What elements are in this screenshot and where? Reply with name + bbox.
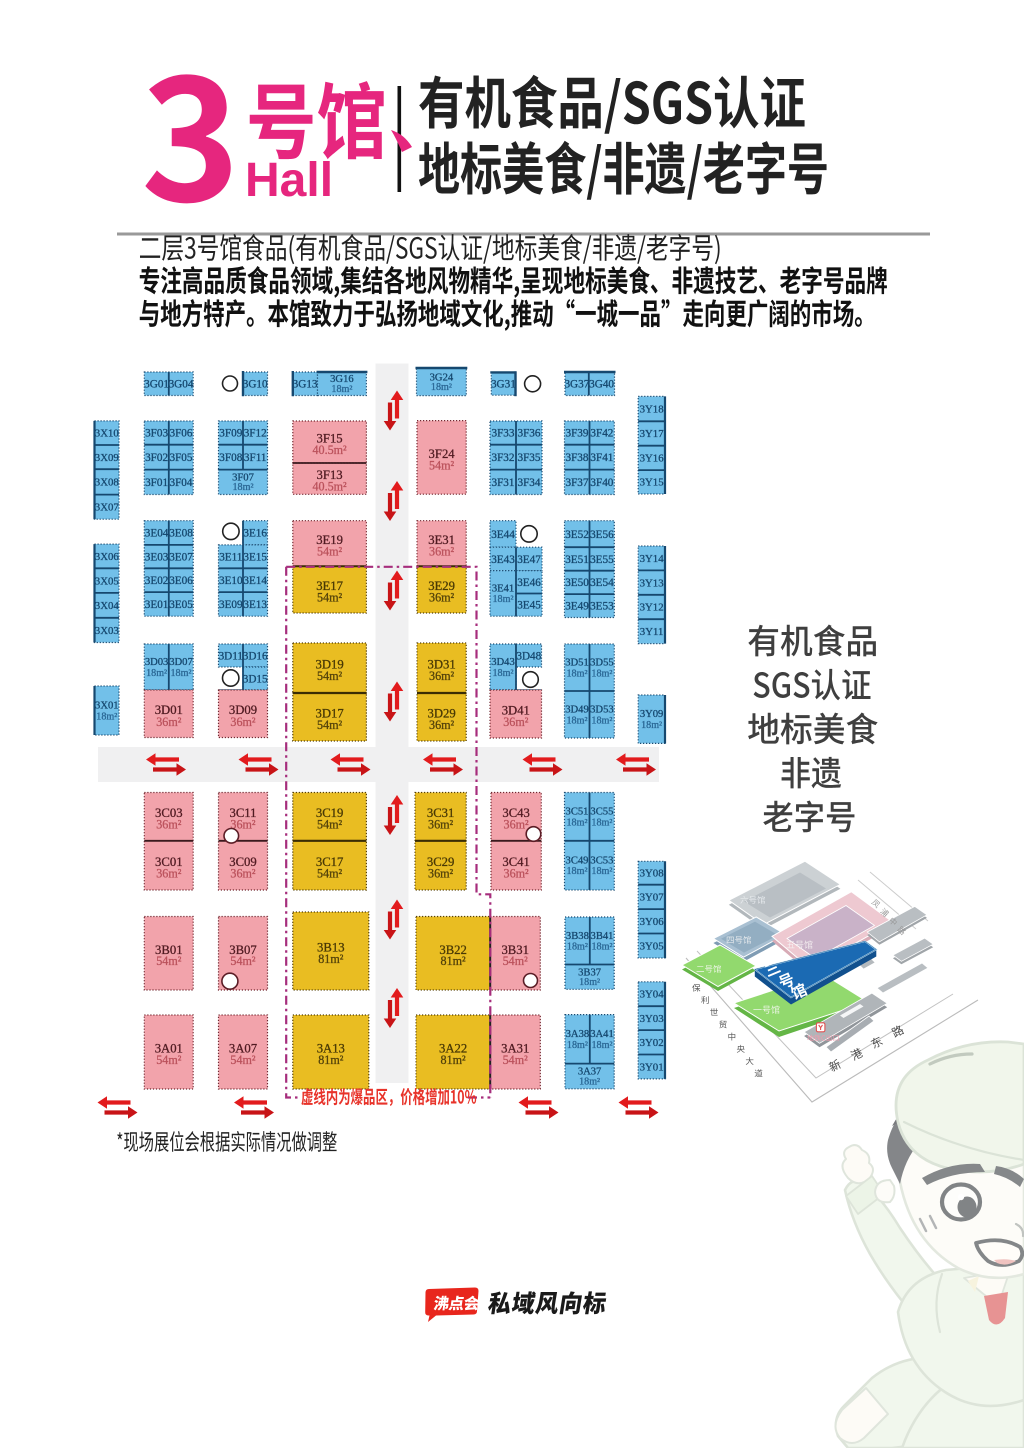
svg-text:18m²: 18m² (579, 1076, 600, 1087)
svg-text:36m²: 36m² (428, 818, 454, 832)
svg-text:3X06: 3X06 (95, 551, 120, 563)
svg-text:36m²: 36m² (429, 669, 455, 683)
svg-text:3Y04: 3Y04 (640, 989, 665, 1001)
svg-text:36m²: 36m² (428, 866, 454, 880)
svg-text:54m²: 54m² (503, 1053, 529, 1067)
svg-text:3Y05: 3Y05 (640, 940, 664, 952)
svg-text:3D55: 3D55 (590, 658, 614, 669)
svg-text:3Y07: 3Y07 (640, 892, 665, 904)
svg-text:3F37: 3F37 (565, 477, 588, 489)
svg-text:18m²: 18m² (567, 1040, 588, 1051)
svg-text:54m²: 54m² (429, 458, 455, 472)
svg-text:3E01: 3E01 (145, 599, 169, 611)
svg-text:3F02: 3F02 (145, 452, 168, 464)
svg-text:3F36: 3F36 (517, 428, 540, 440)
svg-text:18m²: 18m² (567, 942, 588, 953)
svg-text:3G40: 3G40 (589, 379, 614, 391)
svg-text:36m²: 36m² (156, 715, 182, 729)
svg-text:36m²: 36m² (429, 718, 455, 732)
svg-text:3A38: 3A38 (566, 1029, 590, 1040)
svg-text:3X09: 3X09 (95, 452, 119, 464)
svg-text:3F01: 3F01 (145, 477, 168, 489)
svg-text:3F34: 3F34 (517, 477, 540, 489)
svg-text:3E43: 3E43 (491, 554, 515, 566)
svg-text:54m²: 54m² (230, 1053, 256, 1067)
svg-text:3Y12: 3Y12 (640, 602, 664, 614)
svg-text:3E46: 3E46 (517, 577, 541, 589)
svg-text:3C49: 3C49 (566, 855, 589, 866)
svg-text:81m²: 81m² (441, 954, 467, 968)
svg-text:18m²: 18m² (146, 668, 167, 679)
svg-text:3E06: 3E06 (169, 575, 193, 587)
svg-text:3E05: 3E05 (169, 599, 193, 611)
svg-text:54m²: 54m² (317, 591, 343, 605)
svg-text:3F38: 3F38 (565, 452, 588, 464)
svg-text:18m²: 18m² (591, 715, 612, 726)
svg-text:3D07: 3D07 (169, 657, 193, 668)
svg-text:3C53: 3C53 (590, 855, 613, 866)
svg-text:3Y13: 3Y13 (640, 577, 664, 589)
svg-text:3D03: 3D03 (145, 657, 169, 668)
svg-text:3E45: 3E45 (517, 600, 541, 612)
svg-text:36m²: 36m² (429, 591, 455, 605)
svg-text:3D51: 3D51 (565, 658, 589, 669)
svg-text:3E03: 3E03 (145, 551, 169, 563)
svg-text:3F08: 3F08 (219, 452, 242, 464)
svg-text:54m²: 54m² (230, 954, 256, 968)
svg-text:18m²: 18m² (592, 942, 613, 953)
svg-text:36m²: 36m² (504, 866, 530, 880)
svg-text:3Y11: 3Y11 (640, 626, 664, 638)
svg-text:18m²: 18m² (493, 594, 514, 605)
svg-text:3X03: 3X03 (95, 625, 119, 637)
svg-text:3E02: 3E02 (145, 575, 169, 587)
svg-text:18m²: 18m² (331, 384, 352, 395)
svg-text:40.5m²: 40.5m² (312, 443, 347, 457)
svg-text:3D11: 3D11 (219, 650, 243, 662)
svg-text:3X01: 3X01 (95, 701, 119, 712)
svg-text:18m²: 18m² (592, 1040, 613, 1051)
svg-text:3F03: 3F03 (145, 428, 168, 440)
svg-text:3E56: 3E56 (590, 529, 614, 541)
svg-text:3Y15: 3Y15 (640, 477, 664, 489)
svg-text:3X04: 3X04 (95, 600, 120, 612)
svg-text:36m²: 36m² (156, 866, 182, 880)
svg-text:3E04: 3E04 (145, 528, 169, 540)
svg-text:3Y18: 3Y18 (640, 404, 664, 416)
svg-text:3E10: 3E10 (219, 575, 243, 587)
svg-text:3C55: 3C55 (590, 807, 613, 818)
svg-text:3E49: 3E49 (565, 601, 589, 613)
svg-text:3Y08: 3Y08 (640, 868, 664, 880)
svg-text:81m²: 81m² (318, 952, 344, 966)
svg-text:18m²: 18m² (431, 382, 452, 393)
svg-text:3E13: 3E13 (243, 599, 267, 611)
svg-text:81m²: 81m² (441, 1053, 467, 1067)
svg-text:3G04: 3G04 (169, 379, 194, 391)
svg-text:Hall: Hall (245, 154, 333, 207)
svg-text:3G01: 3G01 (144, 379, 169, 391)
svg-text:36m²: 36m² (429, 545, 455, 559)
svg-text:3E09: 3E09 (219, 599, 243, 611)
svg-text:3G37: 3G37 (564, 379, 589, 391)
svg-text:3D15: 3D15 (243, 673, 268, 685)
svg-text:54m²: 54m² (317, 866, 343, 880)
svg-text:3E47: 3E47 (517, 554, 541, 566)
svg-text:3E52: 3E52 (565, 529, 589, 541)
svg-text:3F31: 3F31 (491, 477, 514, 489)
svg-text:3F33: 3F33 (491, 428, 514, 440)
svg-text:3X05: 3X05 (95, 575, 119, 587)
svg-text:54m²: 54m² (156, 1053, 182, 1067)
svg-text:18m²: 18m² (567, 668, 588, 679)
svg-text:3E11: 3E11 (219, 551, 242, 563)
svg-text:3D53: 3D53 (590, 705, 614, 716)
svg-text:36m²: 36m² (504, 818, 530, 832)
svg-text:3D49: 3D49 (565, 705, 589, 716)
svg-text:3G13: 3G13 (293, 379, 318, 391)
svg-text:36m²: 36m² (503, 715, 529, 729)
svg-text:3Y06: 3Y06 (640, 916, 665, 928)
svg-text:3G10: 3G10 (243, 379, 268, 391)
svg-text:3E54: 3E54 (590, 577, 614, 589)
svg-text:3A41: 3A41 (590, 1029, 614, 1040)
svg-text:54m²: 54m² (156, 954, 182, 968)
svg-text:3F06: 3F06 (169, 428, 192, 440)
svg-text:18m²: 18m² (567, 866, 588, 877)
svg-text:3Y14: 3Y14 (640, 553, 665, 565)
svg-text:81m²: 81m² (318, 1053, 344, 1067)
svg-text:3F42: 3F42 (590, 428, 613, 440)
svg-text:3X08: 3X08 (95, 477, 119, 489)
svg-text:54m²: 54m² (317, 818, 343, 832)
svg-text:3B41: 3B41 (591, 931, 614, 942)
svg-text:3G31: 3G31 (491, 379, 516, 391)
svg-text:3F35: 3F35 (517, 452, 540, 464)
svg-text:3D16: 3D16 (243, 650, 268, 662)
svg-text:36m²: 36m² (230, 715, 256, 729)
svg-text:3E16: 3E16 (243, 528, 267, 540)
svg-text:3E50: 3E50 (565, 577, 589, 589)
svg-text:3F11: 3F11 (244, 452, 267, 464)
svg-text:18m²: 18m² (641, 720, 662, 731)
svg-text:18m²: 18m² (567, 817, 588, 828)
svg-text:3Y09: 3Y09 (640, 709, 664, 720)
svg-text:18m²: 18m² (591, 817, 612, 828)
svg-text:3Y03: 3Y03 (640, 1013, 664, 1025)
svg-text:3E41: 3E41 (492, 584, 514, 595)
svg-text:3E53: 3E53 (590, 601, 614, 613)
svg-text:3D43: 3D43 (491, 657, 515, 668)
svg-text:3F04: 3F04 (169, 477, 192, 489)
svg-text:3F12: 3F12 (244, 428, 267, 440)
svg-text:54m²: 54m² (317, 669, 343, 683)
svg-text:3E51: 3E51 (565, 554, 589, 566)
svg-text:3E07: 3E07 (169, 551, 193, 563)
svg-text:3B38: 3B38 (566, 931, 589, 942)
svg-text:18m²: 18m² (96, 711, 117, 722)
svg-text:18m²: 18m² (233, 482, 254, 493)
svg-text:3X10: 3X10 (95, 428, 119, 440)
svg-text:3F39: 3F39 (565, 428, 588, 440)
svg-text:18m²: 18m² (171, 668, 192, 679)
svg-text:3F41: 3F41 (590, 452, 613, 464)
svg-text:3Y16: 3Y16 (640, 453, 665, 465)
svg-text:3F05: 3F05 (169, 452, 192, 464)
svg-text:3F09: 3F09 (219, 428, 242, 440)
svg-text:54m²: 54m² (317, 718, 343, 732)
svg-text:18m²: 18m² (591, 668, 612, 679)
svg-text:54m²: 54m² (503, 954, 529, 968)
svg-text:3E15: 3E15 (243, 551, 267, 563)
svg-text:3Y17: 3Y17 (640, 428, 665, 440)
svg-text:3F40: 3F40 (590, 477, 613, 489)
svg-text:54m²: 54m² (317, 545, 343, 559)
svg-text:3D48: 3D48 (516, 650, 541, 662)
svg-text:18m²: 18m² (567, 715, 588, 726)
svg-text:3Y01: 3Y01 (640, 1061, 664, 1073)
svg-text:36m²: 36m² (230, 866, 256, 880)
svg-text:36m²: 36m² (156, 818, 182, 832)
svg-text:3F32: 3F32 (491, 452, 514, 464)
svg-text:3E44: 3E44 (491, 529, 515, 541)
svg-text:18m²: 18m² (579, 977, 600, 988)
svg-text:3Y02: 3Y02 (640, 1037, 664, 1049)
svg-text:3X07: 3X07 (95, 502, 120, 514)
svg-text:3E14: 3E14 (243, 575, 267, 587)
svg-text:3E55: 3E55 (590, 554, 614, 566)
svg-text:3C51: 3C51 (566, 807, 589, 818)
svg-text:40.5m²: 40.5m² (312, 480, 347, 494)
svg-text:18m²: 18m² (591, 866, 612, 877)
svg-text:3E08: 3E08 (169, 528, 193, 540)
svg-text:18m²: 18m² (493, 668, 514, 679)
